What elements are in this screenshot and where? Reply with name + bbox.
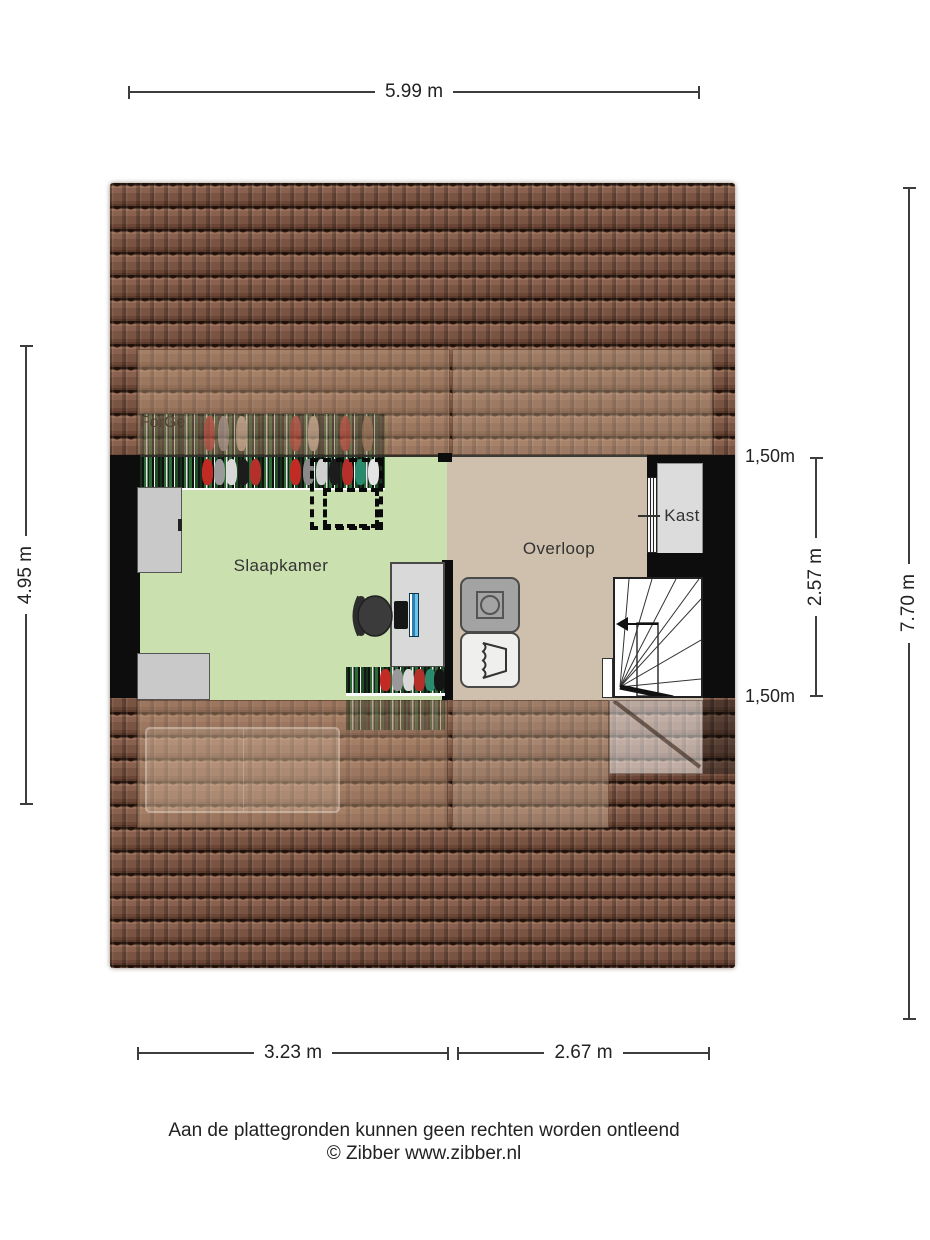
dimension-tick (698, 86, 700, 99)
laundry-basket-icon (460, 632, 520, 688)
wardrobe-icon-bottom (346, 667, 445, 696)
dimension-bottom-right-label: 2.67 m (544, 1042, 622, 1064)
wardrobe-ghost-icon-bottom (346, 700, 445, 730)
stairs-bottom-step (620, 687, 673, 696)
dimension-line (453, 91, 698, 93)
dimension-line (908, 189, 910, 564)
dimension-line (623, 1052, 708, 1054)
dimension-line (25, 347, 27, 536)
roof-overlay-landing-top (452, 349, 713, 455)
stairs-arrow-head (616, 617, 628, 631)
roof-overlay-landing-bottom (452, 700, 609, 828)
washing-machine-icon (460, 577, 520, 633)
dimension-bottom-left-width: 3.23 m (137, 1042, 449, 1064)
dimension-line (130, 91, 375, 93)
dimension-line (908, 643, 910, 1018)
knee-wall-label-bottom: 1,50m (745, 686, 795, 707)
monitor-screen-icon (409, 593, 419, 637)
closet-bottom-wall (647, 553, 703, 577)
dimension-right-inner-height: 2.57 m (803, 457, 829, 697)
skylight-inner-outline (323, 488, 379, 528)
dimension-bottom-right-width: 2.67 m (457, 1042, 710, 1064)
kast-leader-line (638, 515, 660, 517)
footer: Aan de plattegronden kunnen geen rechten… (0, 1119, 848, 1165)
wall-left (110, 455, 140, 698)
room-label-kast: Kast (659, 506, 705, 526)
cabinet-icon-2 (137, 653, 210, 700)
wall-right (703, 455, 735, 698)
floorplan-page: 5.99 m 4.95 m 2.57 m 7.70 m 1,50m 1,50m … (0, 0, 930, 1240)
stairs-ghost-icon (609, 700, 703, 774)
office-chair-icon (350, 591, 394, 641)
stairs-icon (613, 577, 703, 698)
dimension-right-total-height: 7.70 m (896, 187, 922, 1020)
dimension-top-width: 5.99 m (128, 81, 700, 103)
bed-ghost-icon (145, 727, 340, 813)
dimension-tick (708, 1047, 710, 1060)
wall-right-ghost (703, 700, 735, 774)
dimension-right-inner-label: 2.57 m (805, 538, 827, 616)
dimension-top-width-label: 5.99 m (375, 81, 453, 103)
dimension-line (332, 1052, 447, 1054)
dimension-tick (810, 695, 823, 697)
stairs-treads (620, 579, 701, 687)
room-label-slaapkamer: Slaapkamer (195, 556, 367, 576)
dimension-bottom-left-label: 3.23 m (254, 1042, 332, 1064)
dimension-line (25, 614, 27, 803)
dimension-right-total-label: 7.70 m (898, 564, 920, 642)
footer-disclaimer: Aan de plattegronden kunnen geen rechten… (0, 1119, 848, 1142)
dimension-line (815, 459, 817, 538)
wall-divider-stub (438, 453, 452, 462)
footer-copyright: © Zibber www.zibber.nl (0, 1142, 848, 1165)
dimension-left-height: 4.95 m (13, 345, 39, 805)
dimension-tick (903, 1018, 916, 1020)
stairs-step (602, 658, 613, 698)
dimension-line (139, 1052, 254, 1054)
knee-wall-label-top: 1,50m (745, 446, 795, 467)
cabinet-icon (137, 487, 182, 573)
dimension-tick (447, 1047, 449, 1060)
dimension-line (459, 1052, 544, 1054)
monitor-icon (394, 601, 408, 629)
dimension-tick (20, 803, 33, 805)
dimension-left-height-label: 4.95 m (15, 536, 37, 614)
room-label-overloop: Overloop (479, 539, 639, 559)
wardrobe-ghost-icon: ForGe (140, 414, 385, 455)
dimension-line (815, 616, 817, 695)
